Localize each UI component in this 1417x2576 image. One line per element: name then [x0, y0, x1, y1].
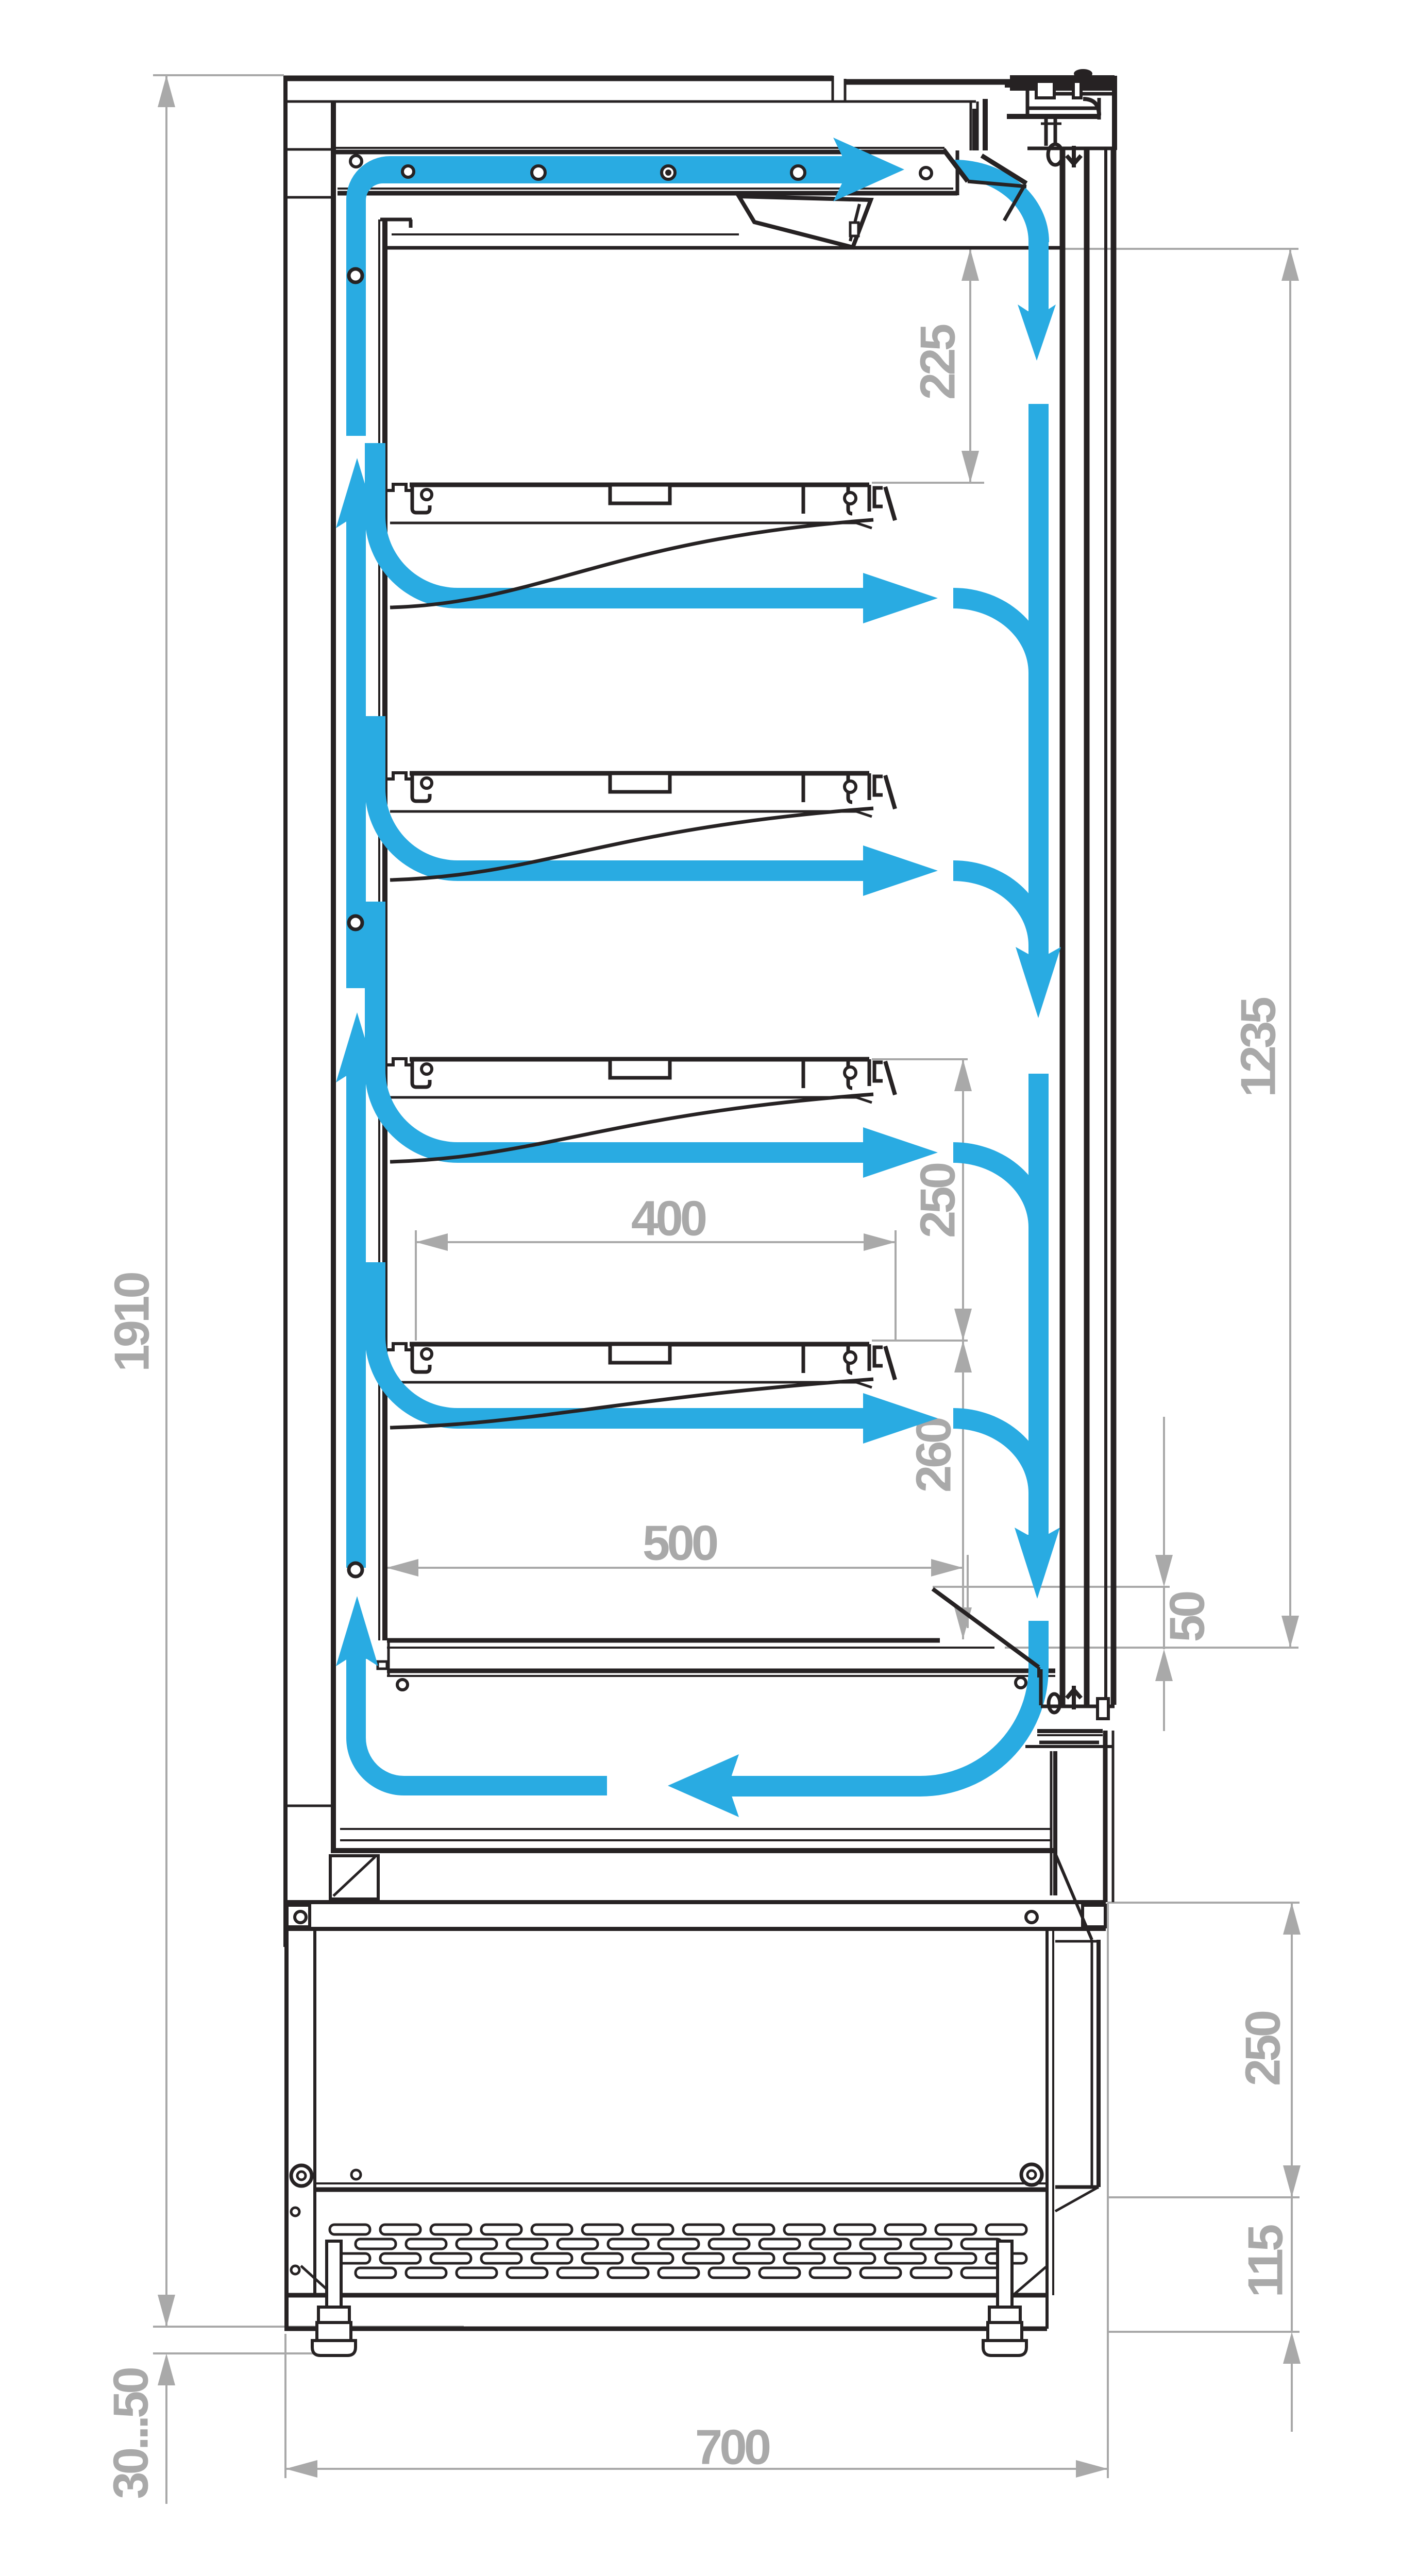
- svg-text:400: 400: [631, 1191, 706, 1246]
- svg-text:115: 115: [1238, 2225, 1293, 2297]
- svg-text:225: 225: [910, 325, 966, 400]
- svg-text:50: 50: [1160, 1592, 1215, 1642]
- svg-text:250: 250: [910, 1163, 966, 1238]
- svg-text:1910: 1910: [105, 1273, 160, 1372]
- svg-text:700: 700: [695, 2420, 770, 2475]
- svg-text:250: 250: [1236, 2011, 1291, 2086]
- svg-text:500: 500: [643, 1516, 717, 1571]
- svg-text:1235: 1235: [1231, 998, 1286, 1097]
- svg-text:30...50: 30...50: [104, 2368, 159, 2499]
- svg-text:260: 260: [906, 1418, 961, 1493]
